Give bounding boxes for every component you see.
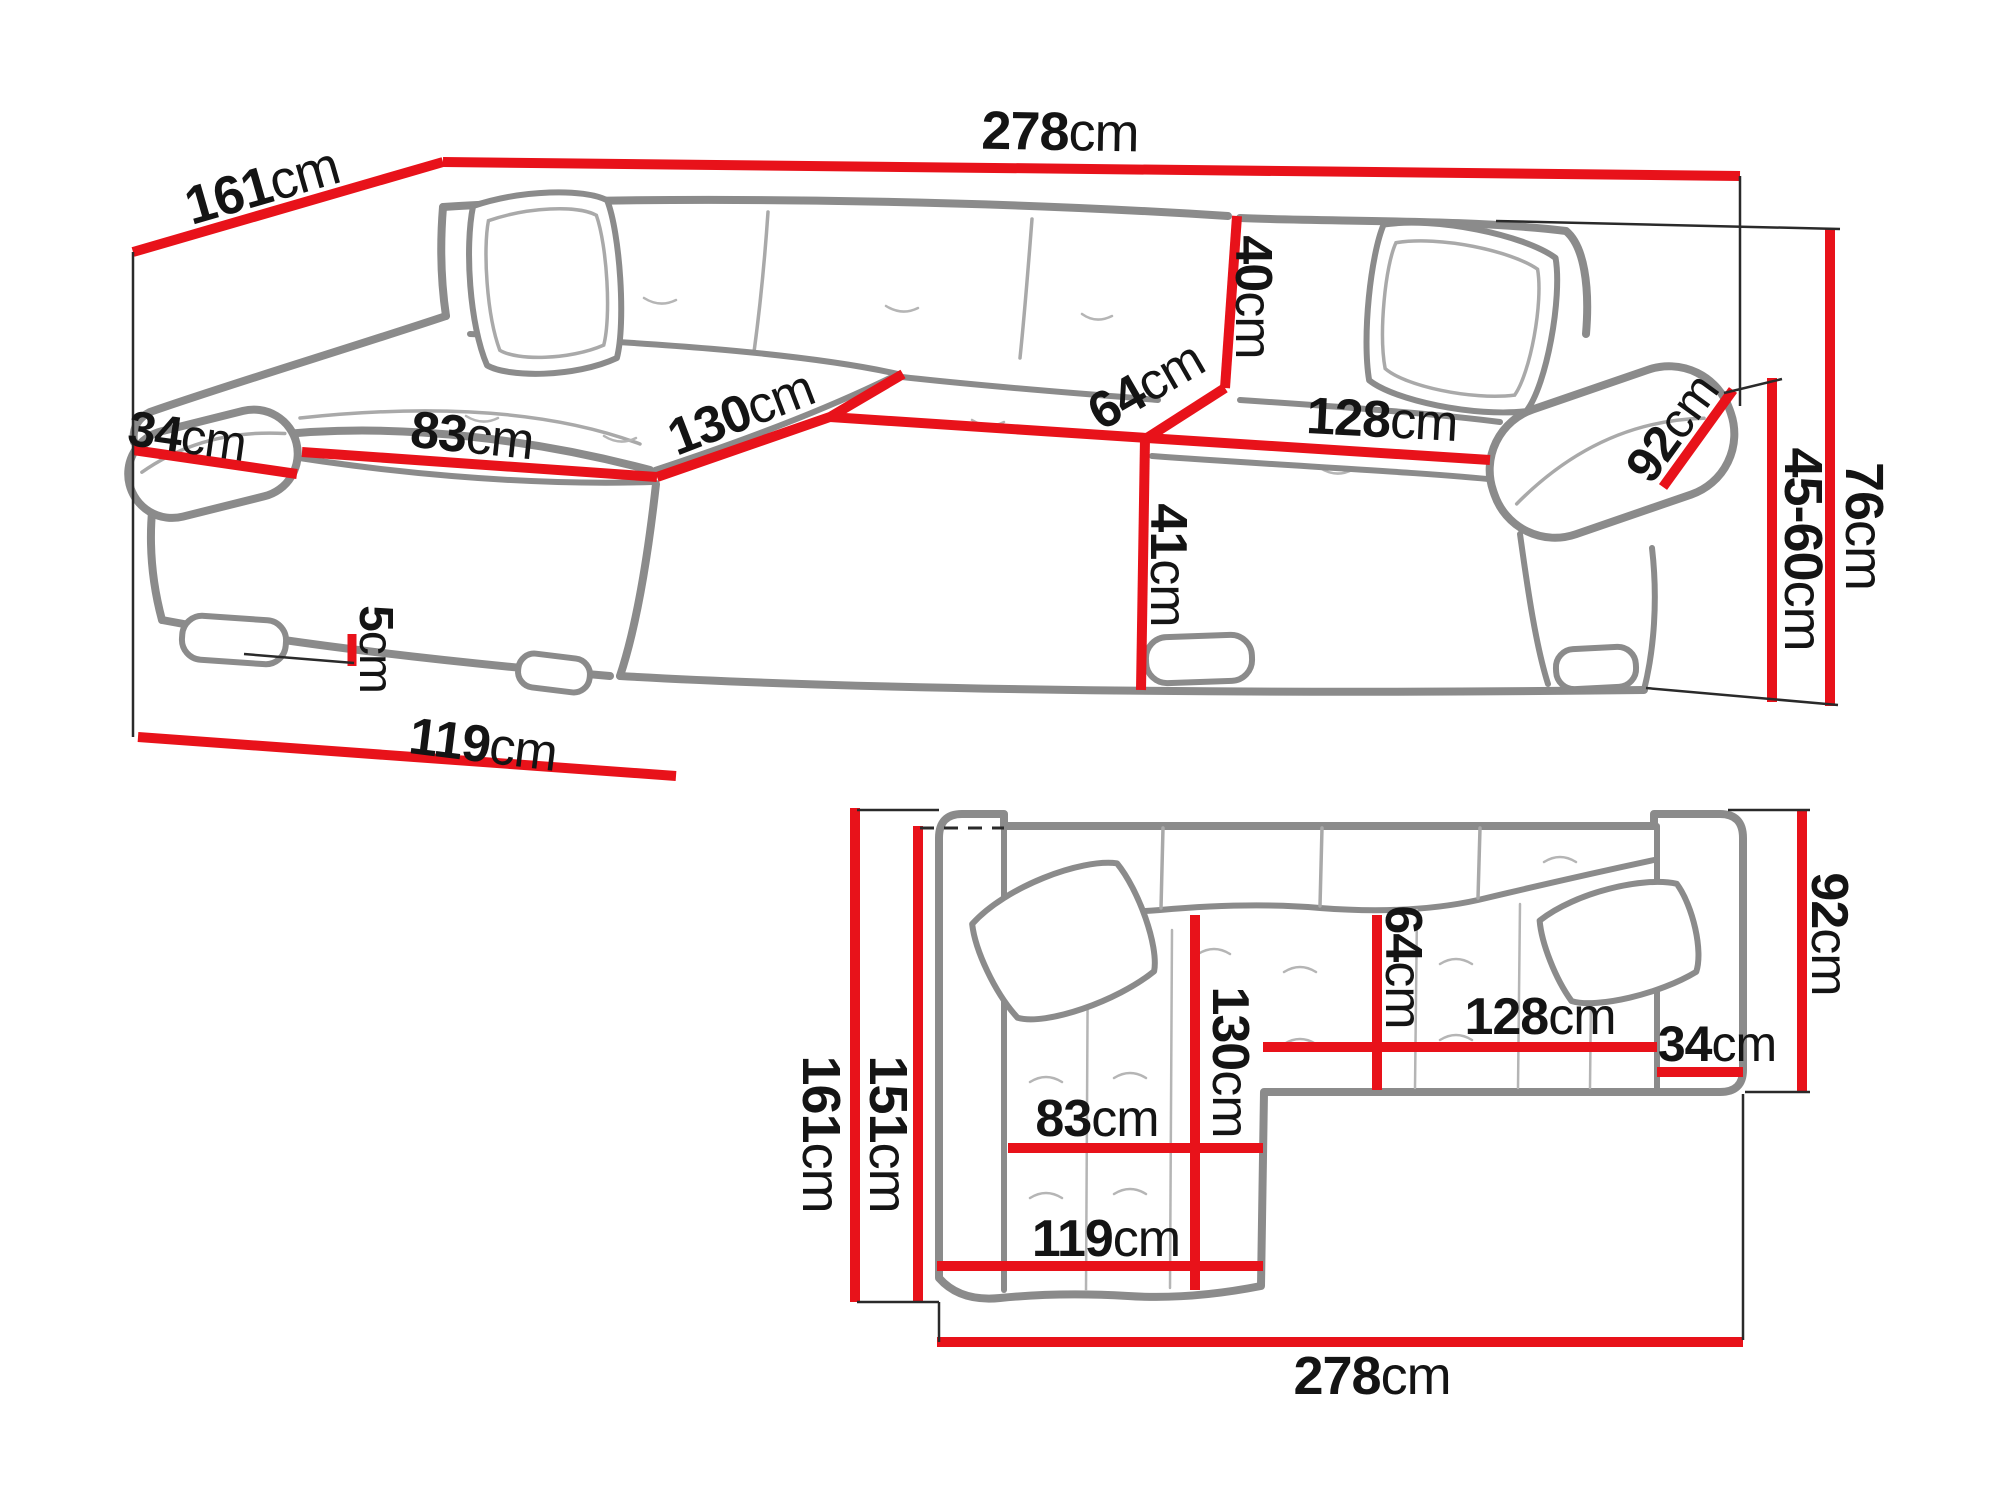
sofa-leg	[1145, 634, 1253, 684]
dim-label-64: 64cm	[1078, 330, 1214, 442]
dim-label-76: 76cm	[1834, 462, 1894, 590]
sofa-leg	[516, 652, 592, 695]
plan-back-cushion-divider	[1478, 828, 1480, 898]
dim-label-128: 128cm	[1305, 387, 1459, 453]
main-base-bottom-edge	[620, 676, 1644, 692]
tuft-mark	[1082, 314, 1112, 320]
backrest-seam	[1020, 219, 1032, 358]
plan-back-cushion-divider	[1161, 828, 1163, 908]
dim-label-45-60: 45-60cm	[1773, 447, 1833, 650]
chaise-right-front-edge	[620, 484, 656, 676]
dim-label-64-plan: 64cm	[1374, 905, 1432, 1028]
diagram-page: 161cm 278cm 34cm 83cm 130cm 64cm 40cm 41…	[0, 0, 2000, 1500]
backrest-seam	[754, 212, 768, 352]
dim-label-128-plan: 128cm	[1464, 988, 1615, 1046]
dim-label-151-plan: 151cm	[858, 1055, 918, 1212]
dim-label-40: 40cm	[1224, 235, 1282, 358]
dim-line-278	[443, 162, 1740, 176]
plan-back-cushion-divider	[1320, 828, 1322, 906]
dim-label-161: 161cm	[178, 136, 346, 237]
arm-base-seam	[1520, 534, 1548, 684]
extension-floor-right	[1646, 688, 1838, 705]
dim-label-130-plan: 130cm	[1201, 986, 1259, 1137]
sofa-leg	[1555, 646, 1637, 690]
dim-label-278-plan: 278cm	[1293, 1346, 1450, 1406]
dim-label-41: 41cm	[1139, 503, 1197, 626]
dim-label-119: 119cm	[406, 707, 560, 783]
dim-label-278: 278cm	[981, 101, 1139, 164]
backrest-left-edge	[441, 207, 446, 316]
dim-label-161-plan: 161cm	[791, 1055, 851, 1212]
back-pillow-left	[463, 187, 628, 380]
dim-label-83-plan: 83cm	[1035, 1090, 1158, 1148]
dim-label-34-plan: 34cm	[1658, 1016, 1776, 1072]
perspective-view: 161cm 278cm 34cm 83cm 130cm 64cm 40cm 41…	[119, 101, 1894, 783]
plan-view: 161cm 151cm 130cm 64cm 83cm 119cm 128cm …	[791, 808, 1858, 1406]
tuft-mark	[644, 298, 676, 304]
tuft-mark	[886, 306, 918, 312]
sofa-dimension-diagram: 161cm 278cm 34cm 83cm 130cm 64cm 40cm 41…	[0, 0, 2000, 1500]
main-base-right-edge	[1644, 548, 1655, 690]
dim-label-119-plan: 119cm	[1032, 1210, 1180, 1268]
sofa-leg	[181, 614, 288, 665]
dim-label-92-plan: 92cm	[1800, 872, 1858, 995]
dim-label-5: 5cm	[350, 605, 403, 693]
